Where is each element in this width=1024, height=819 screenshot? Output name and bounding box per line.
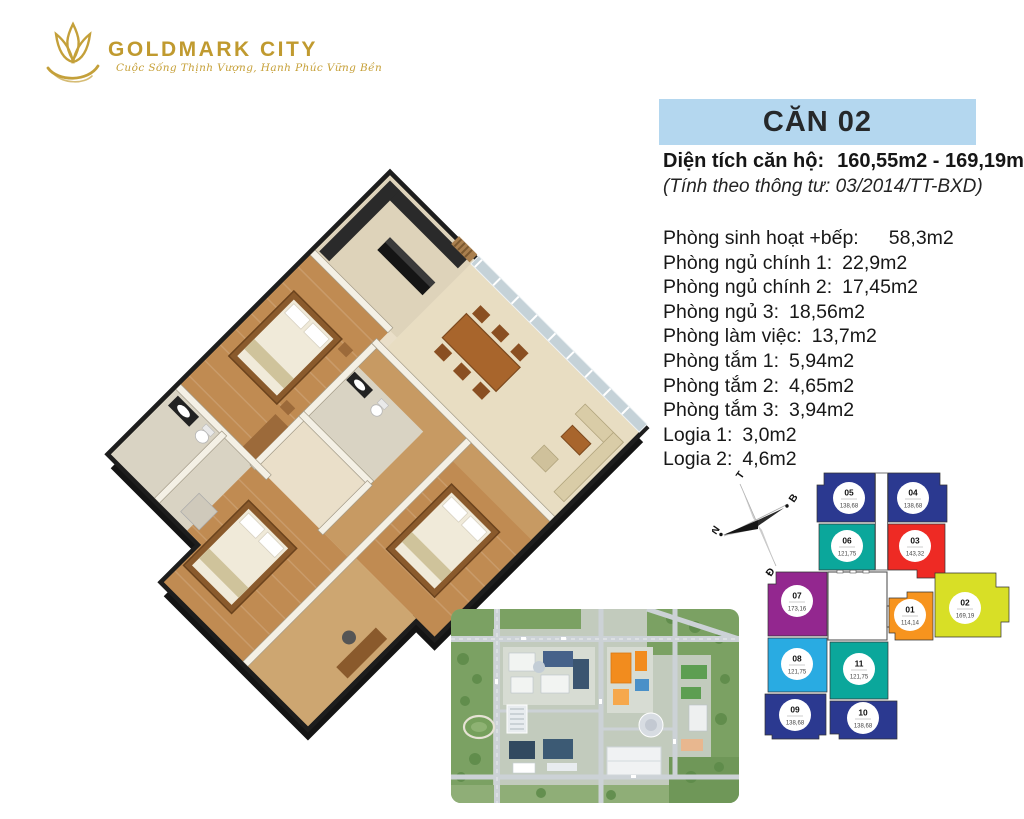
compass-west-label: T — [734, 469, 748, 482]
svg-text:138,68: 138,68 — [840, 504, 859, 510]
svg-text:11: 11 — [855, 659, 864, 669]
brand-name: GOLDMARK CITY — [108, 38, 318, 62]
room-label: Logia 1: — [663, 423, 732, 448]
room-label: Phòng ngủ 3: — [663, 300, 779, 325]
svg-text:08: 08 — [792, 654, 802, 664]
room-row: Phòng tắm 3:3,94m2 — [663, 398, 954, 423]
logo: GOLDMARK CITY Cuộc Sống Thịnh Vượng, Hạn… — [38, 18, 338, 98]
room-row: Phòng tắm 1:5,94m2 — [663, 349, 954, 374]
svg-text:06: 06 — [842, 536, 852, 546]
room-label: Phòng làm việc: — [663, 324, 802, 349]
room-area: 58,3m2 — [889, 226, 954, 251]
svg-text:03: 03 — [910, 536, 920, 546]
regulation-note: (Tính theo thông tư: 03/2014/TT-BXD) — [663, 176, 983, 198]
svg-text:138,68: 138,68 — [786, 721, 805, 727]
room-row: Phòng ngủ 3:18,56m2 — [663, 300, 954, 325]
site-map — [451, 609, 739, 803]
brochure-page: GOLDMARK CITY Cuộc Sống Thịnh Vượng, Hạn… — [0, 0, 1024, 819]
svg-text:169,19: 169,19 — [956, 614, 975, 620]
floor-plate-diagram: 05138,68 04138,68 06121,75 03143,32 0717… — [762, 465, 1024, 741]
room-label: Phòng tắm 3: — [663, 398, 779, 423]
room-area: 17,45m2 — [842, 275, 918, 300]
svg-text:114,14: 114,14 — [901, 621, 920, 627]
room-area: 3,94m2 — [789, 398, 854, 423]
svg-text:01: 01 — [905, 605, 915, 615]
room-area: 13,7m2 — [812, 324, 877, 349]
svg-text:09: 09 — [790, 705, 800, 715]
room-area-list: Phòng sinh hoạt +bếp:58,3m2 Phòng ngủ ch… — [663, 226, 954, 472]
room-row: Phòng ngủ chính 2:17,45m2 — [663, 275, 954, 300]
svg-text:143,32: 143,32 — [906, 552, 925, 558]
room-area: 22,9m2 — [842, 251, 907, 276]
brand-tagline: Cuộc Sống Thịnh Vượng, Hạnh Phúc Vững Bề… — [116, 62, 382, 74]
room-label: Phòng tắm 2: — [663, 374, 779, 399]
room-area: 3,0m2 — [742, 423, 796, 448]
corridor — [828, 572, 887, 640]
svg-text:121,75: 121,75 — [838, 552, 857, 558]
stadium — [464, 716, 494, 738]
room-area: 4,65m2 — [789, 374, 854, 399]
lotus-icon — [38, 18, 108, 90]
unit-area-value: 160,55m2 - 169,19m2 — [837, 150, 1024, 173]
room-row: Phòng ngủ chính 1:22,9m2 — [663, 251, 954, 276]
elevator-shaft — [876, 473, 888, 570]
unit-title-bar: CĂN 02 — [659, 99, 976, 145]
unit-area-label: Diện tích căn hộ: — [663, 150, 824, 173]
plaza — [639, 713, 663, 737]
svg-text:138,68: 138,68 — [854, 724, 873, 730]
svg-text:173,16: 173,16 — [788, 607, 807, 613]
svg-text:10: 10 — [858, 708, 868, 718]
room-row: Phòng làm việc:13,7m2 — [663, 324, 954, 349]
svg-text:04: 04 — [908, 488, 918, 498]
room-area: 5,94m2 — [789, 349, 854, 374]
room-label: Phòng tắm 1: — [663, 349, 779, 374]
room-label: Phòng ngủ chính 2: — [663, 275, 832, 300]
room-label: Phòng sinh hoạt +bếp: — [663, 226, 859, 251]
white-grid-building — [507, 705, 527, 733]
svg-text:121,75: 121,75 — [788, 670, 807, 676]
room-row: Logia 1:3,0m2 — [663, 423, 954, 448]
room-row: Phòng sinh hoạt +bếp:58,3m2 — [663, 226, 954, 251]
room-label: Phòng ngủ chính 1: — [663, 251, 832, 276]
room-row: Phòng tắm 2:4,65m2 — [663, 374, 954, 399]
unit-area-row: Diện tích căn hộ: 160,55m2 - 169,19m2 — [663, 150, 1024, 173]
svg-text:121,75: 121,75 — [850, 675, 869, 681]
svg-text:05: 05 — [844, 488, 854, 498]
compass-needle — [723, 520, 758, 535]
svg-text:138,68: 138,68 — [904, 504, 923, 510]
room-area: 18,56m2 — [789, 300, 865, 325]
svg-text:07: 07 — [792, 591, 802, 601]
svg-text:02: 02 — [960, 598, 970, 608]
